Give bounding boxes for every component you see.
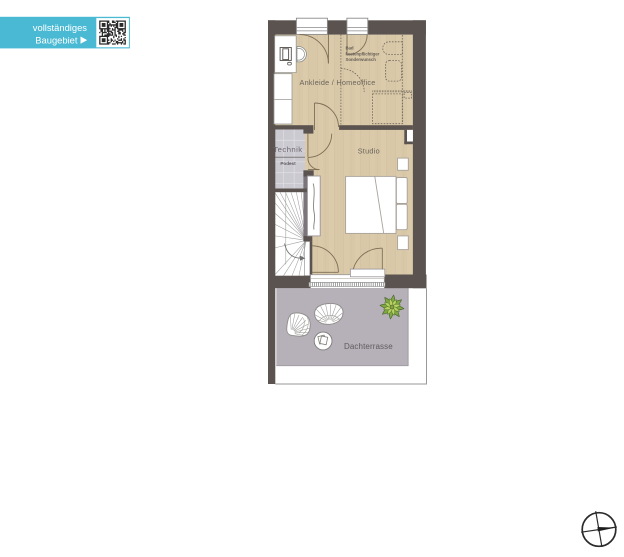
svg-text:Baugebiet: Baugebiet: [35, 35, 78, 46]
svg-text:Sonderwunsch: Sonderwunsch: [346, 57, 377, 62]
svg-text:kostenpflichtiger: kostenpflichtiger: [346, 51, 380, 56]
svg-text:Dachterrasse: Dachterrasse: [344, 342, 393, 351]
svg-text:Bad: Bad: [346, 46, 354, 51]
svg-text:vollständiges: vollständiges: [33, 22, 88, 33]
svg-text:Podest: Podest: [280, 161, 296, 166]
svg-text:Technik: Technik: [273, 145, 302, 154]
svg-text:Studio: Studio: [358, 147, 380, 156]
svg-text:Ankleide / Homeoffice: Ankleide / Homeoffice: [300, 78, 376, 87]
